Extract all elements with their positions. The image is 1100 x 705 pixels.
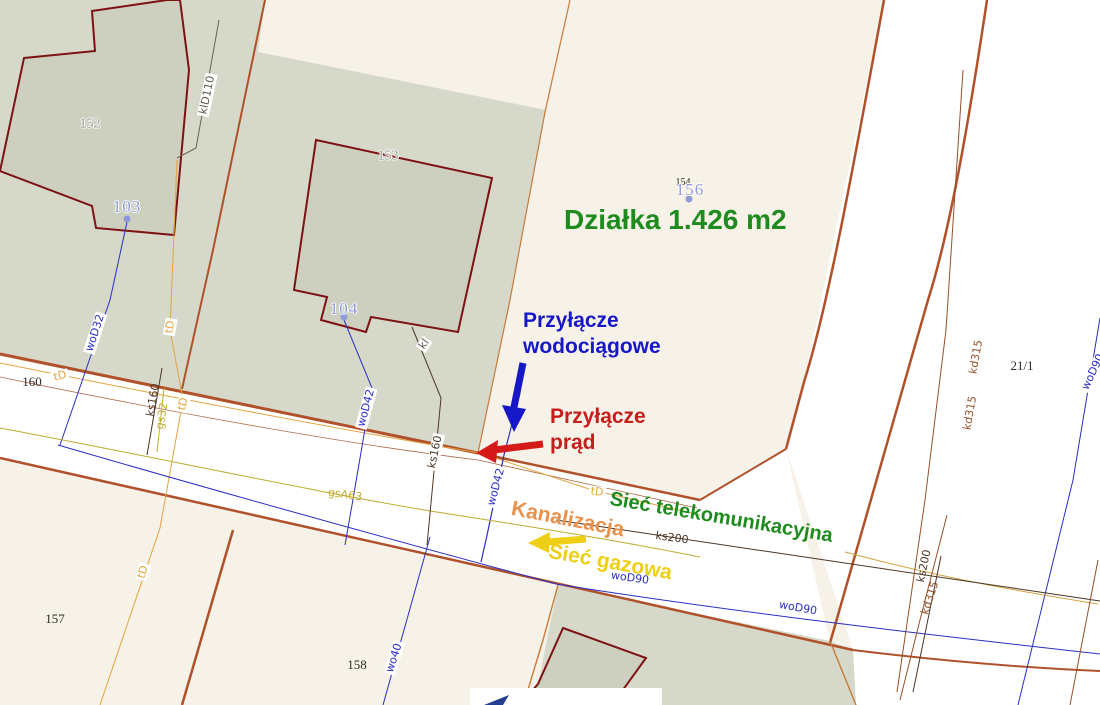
address-number-156: 156 — [676, 181, 705, 199]
water-connection-label: Przyłącze wodociągowe — [523, 308, 661, 359]
utility-label-wod90: woD90 — [608, 569, 651, 586]
utility-label-wod32: woD32 — [83, 311, 107, 355]
map-labels-layer: klD110kltDtDtDtDtDwoD32woD42woD42woD90wo… — [0, 0, 1100, 705]
utility-label-kl: kl — [415, 335, 432, 353]
utility-label-td: tD — [135, 562, 151, 582]
parcel-number-153: 153 — [378, 150, 399, 165]
utility-label-ks200: ks200 — [655, 530, 689, 546]
parcel-number-152: 152 — [80, 118, 101, 133]
plot-area-label: Działka 1.426 m2 — [564, 203, 787, 237]
utility-label-gs32: gs32 — [154, 402, 170, 430]
utility-label-kd315: kd315 — [967, 339, 984, 375]
address-number-104: 104 — [330, 300, 359, 318]
utility-label-ks160: ks160 — [144, 383, 161, 418]
utility-label-ks200: ks200 — [915, 549, 933, 584]
utility-label-wod90: woD90 — [776, 599, 820, 618]
utility-label-td: tD — [175, 394, 191, 413]
power-connection-label: Przyłącze prąd — [550, 404, 646, 455]
utility-label-kd315: kd315 — [919, 580, 941, 616]
utility-label-kld110: klD110 — [197, 73, 217, 117]
utility-label-kd315: kd315 — [961, 395, 978, 431]
utility-label-td: tD — [163, 318, 177, 337]
utility-label-wod42: woD42 — [355, 386, 377, 430]
sewer-network-label: Kanalizacja — [509, 496, 626, 543]
parcel-number-160: 160 — [22, 375, 42, 389]
parcel-number-158: 158 — [347, 658, 367, 672]
cadastral-map[interactable]: klD110kltDtDtDtDtDwoD32woD42woD42woD90wo… — [0, 0, 1100, 705]
gas-network-label: Sieć gazowa — [547, 539, 674, 586]
utility-label-wo40: wo40 — [383, 640, 404, 676]
parcel-number-21-1: 21/1 — [1010, 359, 1033, 373]
utility-label-ks160: ks160 — [425, 433, 444, 472]
parcel-number-157: 157 — [45, 612, 65, 626]
telecom-network-label: Sieć telekomunikacyjna — [608, 487, 835, 548]
utility-label-td: tD — [588, 485, 606, 499]
parcel-number-154: 154 — [676, 178, 691, 189]
address-number-103: 103 — [113, 198, 142, 216]
utility-label-td: tD — [50, 368, 69, 384]
utility-label-wod42: woD42 — [485, 465, 507, 509]
utility-label-gsa63: gsA63 — [327, 487, 363, 503]
utility-label-wod90: woD90 — [1079, 350, 1100, 393]
